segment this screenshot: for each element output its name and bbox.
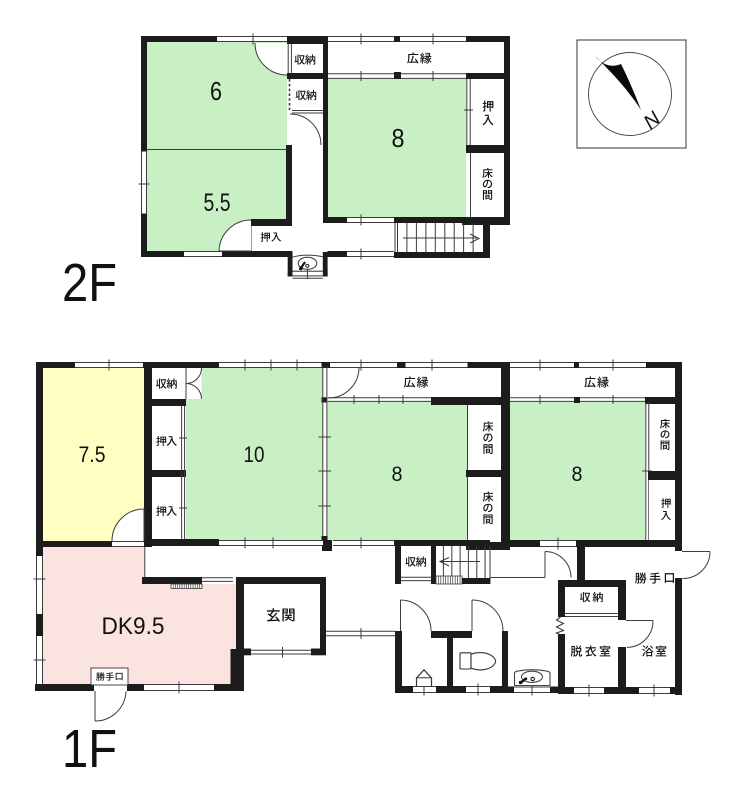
svg-text:7.5: 7.5 (79, 442, 106, 467)
svg-text:5.5: 5.5 (204, 189, 231, 217)
svg-text:8: 8 (392, 123, 405, 153)
svg-text:8: 8 (392, 463, 403, 486)
svg-text:1F: 1F (62, 719, 117, 779)
svg-text:DK9.5: DK9.5 (102, 613, 165, 640)
svg-text:6: 6 (210, 76, 222, 106)
svg-text:2F: 2F (62, 253, 117, 313)
svg-text:10: 10 (244, 442, 265, 467)
svg-text:8: 8 (572, 463, 583, 486)
